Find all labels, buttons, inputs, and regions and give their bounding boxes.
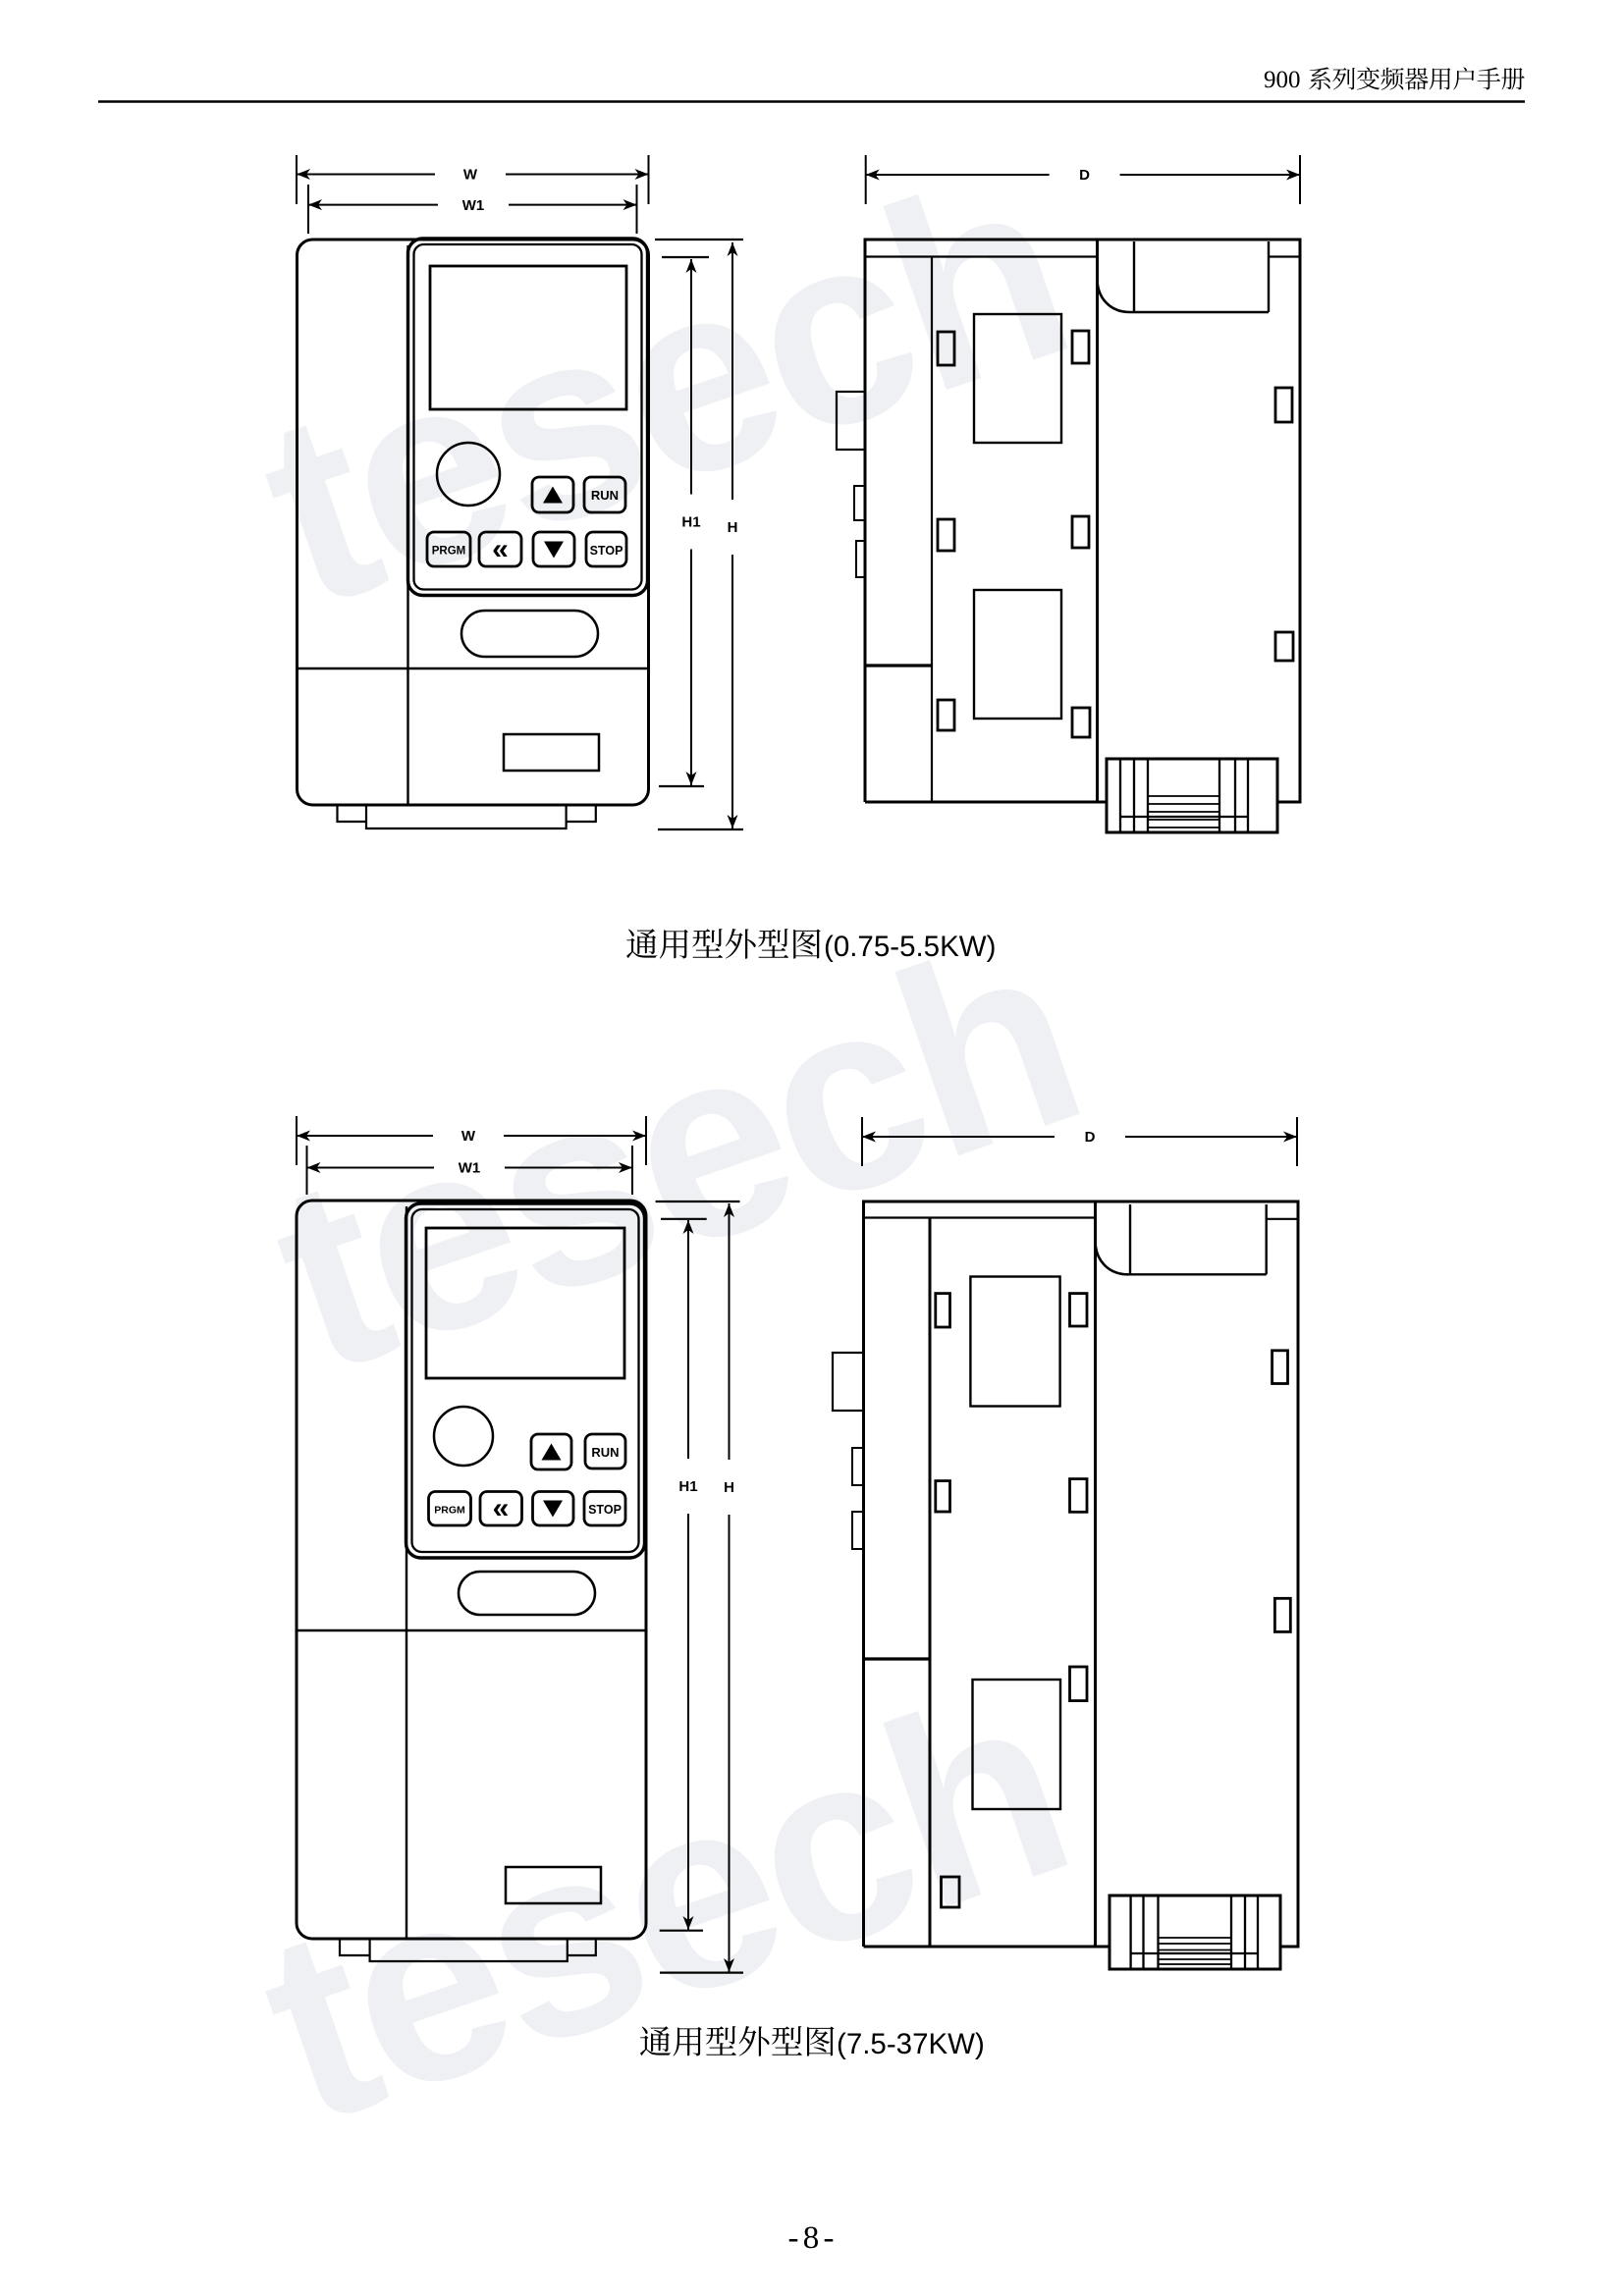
svg-text:RUN: RUN — [591, 488, 619, 503]
svg-text:«: « — [493, 1492, 510, 1524]
svg-text:H: H — [728, 519, 738, 536]
svg-text:tesech: tesech — [230, 1632, 1097, 2180]
svg-text:D: D — [1085, 1129, 1096, 1146]
svg-text:(0.75-5.5KW): (0.75-5.5KW) — [824, 931, 996, 963]
svg-text:W1: W1 — [462, 197, 485, 214]
svg-text:«: « — [492, 533, 509, 565]
svg-text:900: 900 — [1264, 67, 1301, 93]
svg-text:STOP: STOP — [590, 544, 623, 558]
svg-text:(7.5-37KW): (7.5-37KW) — [837, 2028, 985, 2060]
svg-text:- 8 -: - 8 - — [788, 2220, 834, 2256]
svg-text:tesech: tesech — [242, 881, 1109, 1429]
svg-text:D: D — [1079, 167, 1090, 184]
svg-text:PRGM: PRGM — [434, 1505, 465, 1517]
svg-text:W: W — [461, 1128, 476, 1145]
svg-text:W1: W1 — [459, 1160, 481, 1177]
svg-text:H1: H1 — [681, 514, 700, 531]
svg-text:PRGM: PRGM — [432, 546, 466, 558]
svg-text:W: W — [463, 167, 478, 184]
svg-text:H: H — [724, 1479, 734, 1496]
svg-text:H1: H1 — [678, 1478, 697, 1495]
svg-text:STOP: STOP — [588, 1503, 622, 1517]
svg-text:tesech: tesech — [230, 116, 1097, 664]
svg-text:RUN: RUN — [591, 1445, 619, 1460]
